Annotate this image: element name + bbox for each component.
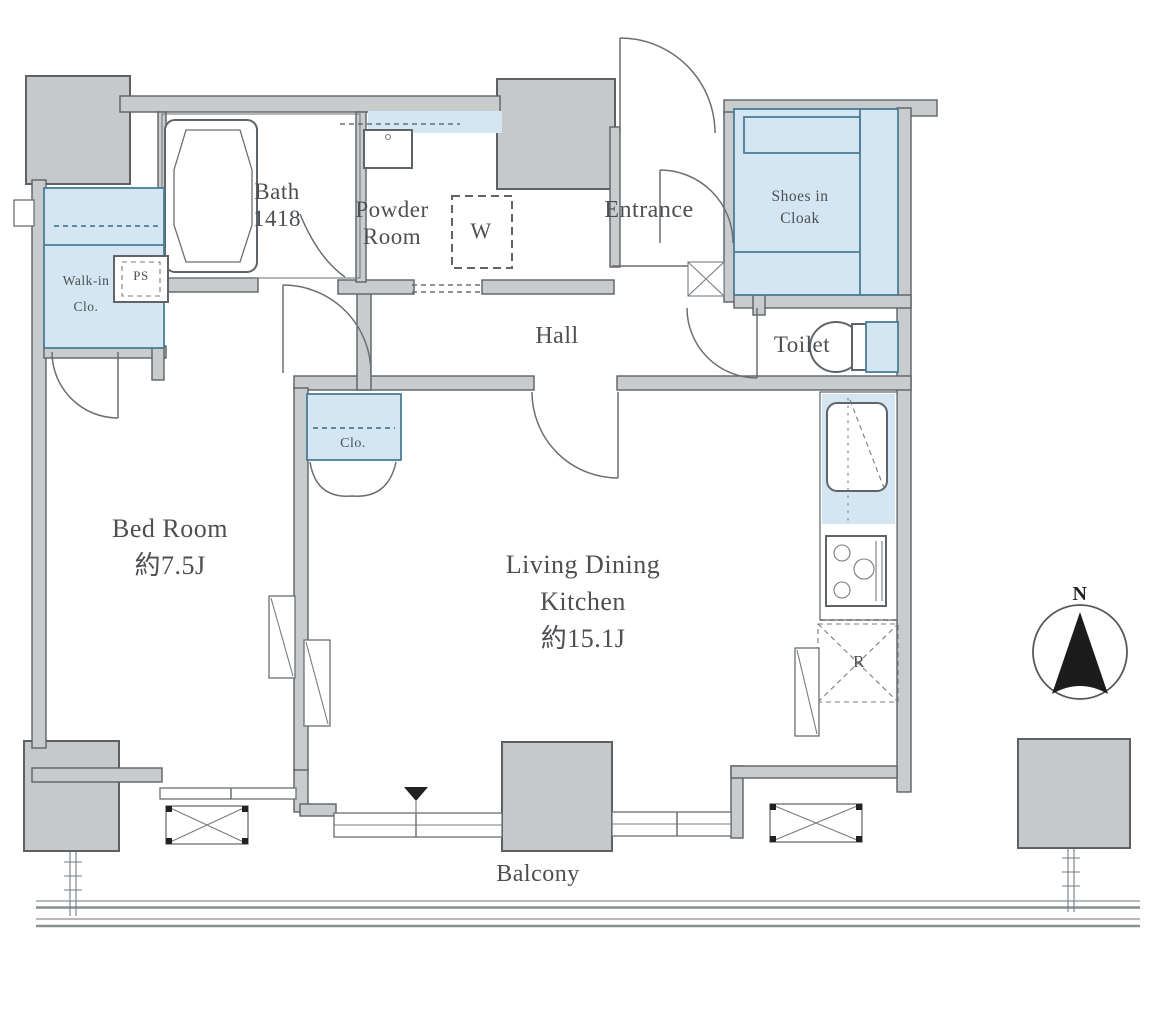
toilet-label: Toilet [742, 331, 862, 358]
refrigerator-label: R [839, 652, 879, 672]
ldk-door [532, 392, 618, 478]
hall-label: Hall [497, 323, 617, 351]
balcony-access-marker [404, 787, 428, 801]
balcony-label: Balcony [458, 861, 618, 889]
closet-label: Clo. [313, 436, 393, 452]
powder-room-label: Powder Room [312, 196, 472, 250]
kitchen-unit [795, 392, 898, 736]
ldk-area: 約15.1J [458, 620, 708, 657]
closet-bifold-door [310, 462, 396, 496]
compass-north-label: N [1060, 583, 1100, 606]
drain-pipe-right [1062, 847, 1080, 912]
ac-unit-right [770, 804, 862, 842]
bedroom-window [160, 788, 296, 799]
washer-label: W [461, 218, 501, 243]
column-top-middle [497, 79, 615, 189]
kitchen-door-panel [795, 648, 819, 736]
ldk-balcony-door [334, 787, 502, 837]
powder-sink [364, 130, 412, 168]
drain-pipe-left [64, 850, 82, 916]
kitchen-sink [827, 403, 887, 491]
shoes-in-cloak-label: Shoes in Cloak [730, 186, 870, 229]
ldk-label: Living Dining Kitchen 約15.1J [458, 546, 708, 657]
column-bottom-right [1018, 739, 1130, 848]
entrance-label: Entrance [569, 197, 729, 225]
toilet-tank [866, 322, 898, 372]
balcony-railing [36, 901, 1140, 926]
floor-plan: Bath 1418 Powder Room W Entrance Shoes i… [0, 0, 1155, 1017]
pipe-space-label: PS [121, 269, 161, 284]
ac-unit-left [166, 806, 248, 844]
column-top-left [26, 76, 130, 184]
kitchen-window [612, 812, 731, 836]
compass [1033, 605, 1127, 699]
walk-in-closet-door [52, 352, 118, 418]
entrance-area [612, 262, 724, 296]
column-bottom-middle [502, 742, 612, 851]
bedroom-area: 約7.5J [70, 547, 270, 584]
entrance-door [620, 38, 715, 133]
stove [826, 536, 886, 606]
column-bottom-left [24, 741, 119, 851]
bedroom-label: Bed Room 約7.5J [70, 510, 270, 584]
powder-sliding-door [412, 285, 484, 292]
entrance-hatch-box [688, 262, 724, 296]
